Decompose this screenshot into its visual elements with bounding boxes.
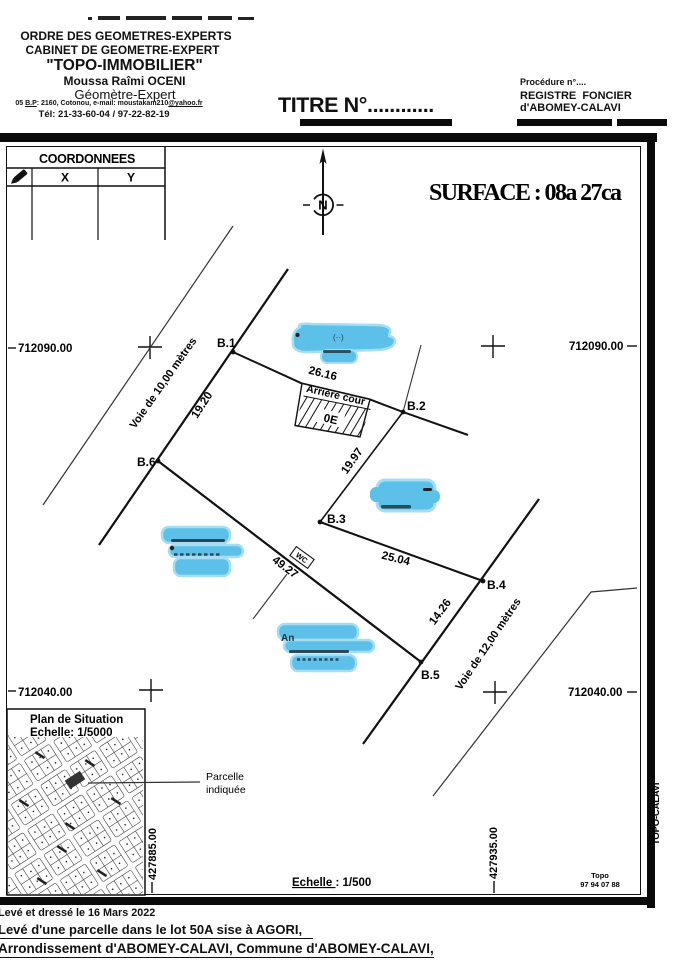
svg-text:X: X: [61, 171, 69, 185]
svg-text:An: An: [281, 633, 294, 644]
svg-text:SURFACE : 08a 27ca: SURFACE : 08a 27ca: [429, 180, 622, 206]
svg-text:19.97: 19.97: [339, 446, 365, 476]
svg-text:B.1: B.1: [217, 336, 236, 350]
svg-text:B.4: B.4: [487, 578, 506, 592]
svg-text:97 94 07 88: 97 94 07 88: [580, 880, 620, 889]
svg-text:Voie de 12,00 mètres: Voie de 12,00 mètres: [453, 596, 523, 692]
svg-text:Y: Y: [127, 171, 135, 185]
svg-text:Plan de Situation: Plan de Situation: [30, 714, 123, 726]
svg-text:TOPO-CALAVI: TOPO-CALAVI: [651, 783, 662, 845]
svg-text:COORDONNEES: COORDONNEES: [39, 152, 135, 166]
svg-text:B.3: B.3: [327, 512, 346, 526]
svg-text:Topo: Topo: [591, 871, 609, 880]
svg-text:26.16: 26.16: [307, 365, 338, 384]
svg-text:712040.00: 712040.00: [18, 687, 72, 699]
svg-text:Parcelle: Parcelle: [206, 771, 244, 783]
svg-text:Echelle: 1/5000: Echelle: 1/5000: [30, 727, 112, 739]
svg-text:N: N: [318, 198, 327, 213]
svg-text:B.5: B.5: [421, 668, 440, 682]
svg-text:712040.00: 712040.00: [568, 687, 622, 699]
svg-text:indiquée: indiquée: [206, 784, 246, 796]
svg-text:712090.00: 712090.00: [569, 341, 623, 353]
svg-text:B.2: B.2: [407, 399, 426, 413]
svg-text:Echelle : 1/500: Echelle : 1/500: [292, 877, 371, 889]
svg-text:(··): (··): [333, 333, 344, 342]
svg-text:712090.00: 712090.00: [18, 343, 72, 355]
svg-text:B.6: B.6: [137, 455, 156, 469]
svg-text:427885.00: 427885.00: [147, 828, 159, 880]
svg-text:Voie de 10,00 mètres: Voie de 10,00 mètres: [128, 336, 200, 431]
svg-text:427935.00: 427935.00: [488, 827, 500, 879]
